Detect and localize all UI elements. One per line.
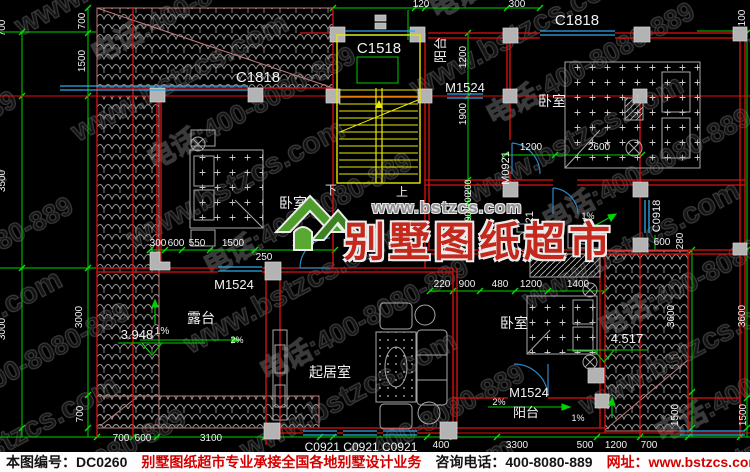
door-label-m1524-bottom: M1524 [509,385,549,400]
room-label-balcony-bottom: 阳台 [513,405,539,420]
elev-3948: 3.948 [121,327,154,342]
dim-3500-left-outer: 3500 [0,169,8,192]
window-label-c1518: C1518 [357,40,401,57]
footer-slogan: 别墅图纸超市专业承接全国各地别墅设计业务 [141,452,421,472]
slope-1pct-bath: 1% [581,211,594,221]
floor-plan-canvas: www.bstzcs.com 电话:400-8080-889 [0,0,750,472]
dim-2600-bath: 2600 [588,142,611,153]
elev-4517: 4.517 [611,331,644,346]
dim-1200-bottom: 1200 [605,440,628,451]
dim-700-bottom-a: 700 [113,433,130,444]
dim-400-bottom: 400 [433,440,450,451]
dim-900-bed: 900 [459,279,476,290]
door-label-m0721: M0721 [524,211,536,245]
dim-900-corridor: 900 [463,206,473,221]
dim-1200-corridor-top: 1200 [458,45,469,68]
window-label-c0918: C0918 [651,200,663,232]
floor-plan-drawing: www.bstzcs.com 电话:400-8080-889 [0,0,750,452]
dim-500-bottom: 500 [577,440,594,451]
stair-label-down: 下 [325,183,337,197]
dim-1500-mid: 1500 [222,238,245,249]
dim-3000-left-outer: 3000 [0,317,8,340]
dim-120-top: 120 [413,0,430,10]
dim-700-corridor: 700 [463,224,473,239]
room-label-terrace: 露台 [187,310,215,326]
dim-600-right: 600 [654,237,671,248]
stair-label-up: 上 [396,185,408,199]
dim-300-mid: 300 [150,238,167,249]
slope-2pct-terrace: 2% [230,335,243,345]
door-label-m1524-left: M1524 [214,277,254,292]
dim-1400-bed: 1400 [567,279,590,290]
dim-480-bed: 480 [492,279,509,290]
dim-700-left-bottom: 700 [75,405,86,422]
dim-3600-right-inner: 3600 [666,304,677,327]
dim-700-left-outer: 700 [0,19,8,36]
window-label-c0921-row: C0921 C0921 C0921 [305,440,418,452]
dim-550-mid: 550 [189,238,206,249]
dim-1500-left-inner: 1500 [77,49,88,72]
dim-1900-corridor: 1900 [458,102,469,125]
footer-phone: 咨询电话：400-8080-889 [435,452,592,472]
bed-top-right [565,62,700,168]
slope-2pct-balcony: 2% [492,397,505,407]
info-footer: 本图编号：DC0260 别墅图纸超市专业承接全国各地别墅设计业务 咨询电话：40… [0,452,750,472]
dim-700-left-inner: 700 [77,12,88,29]
dim-1500-right-outer: 1500 [738,403,749,426]
door-label-m0921: M0921 [500,151,512,185]
room-label-balcony-top: 阳台 [433,37,448,63]
dim-100-top-right: 100 [737,9,748,26]
dim-1500-right-inner: 1500 [670,403,681,426]
dim-700-bottom-b: 700 [641,440,658,451]
slope-1pct-balcony: 1% [571,413,584,423]
dim-3300-bottom: 3300 [506,440,529,451]
dim-220-bed: 220 [434,279,451,290]
dim-300-top: 300 [509,0,526,10]
dim-200-corridor-a: 200 [463,179,473,194]
window-label-c1818-topright: C1818 [555,12,599,29]
dim-3600-right-outer: 3600 [737,304,748,327]
dim-1800-mid: 1800 [292,238,315,249]
bed-bottom-right [527,254,600,354]
slope-1pct-terrace: 1% [155,326,170,337]
roof-tiles-bottom-strip [97,396,319,428]
dim-1200-bath: 1200 [520,142,543,153]
window-label-c1818-topleft: C1818 [236,69,280,86]
room-label-bedroom-left: 卧室 [279,195,307,211]
sheet-number: 本图编号：DC0260 [6,452,127,472]
dim-250-mid: 250 [256,252,273,263]
door-label-m1524-top: M1524 [445,80,485,95]
dim-1200-bed: 1200 [520,279,543,290]
dim-600-bottom: 600 [135,433,152,444]
room-label-bedroom-bottom: 卧室 [500,315,528,331]
dim-3000-left-inner: 3000 [74,305,85,328]
room-label-bedroom-topright: 卧室 [538,93,566,109]
footer-website: 网址：www.bstzcs.com [607,452,750,472]
dim-3100-bottom: 3100 [200,433,223,444]
dim-280-right: 280 [675,232,686,249]
room-label-living: 起居室 [309,364,351,380]
dim-600-mid: 600 [168,238,185,249]
dim-200-corridor-b: 200 [463,192,473,207]
